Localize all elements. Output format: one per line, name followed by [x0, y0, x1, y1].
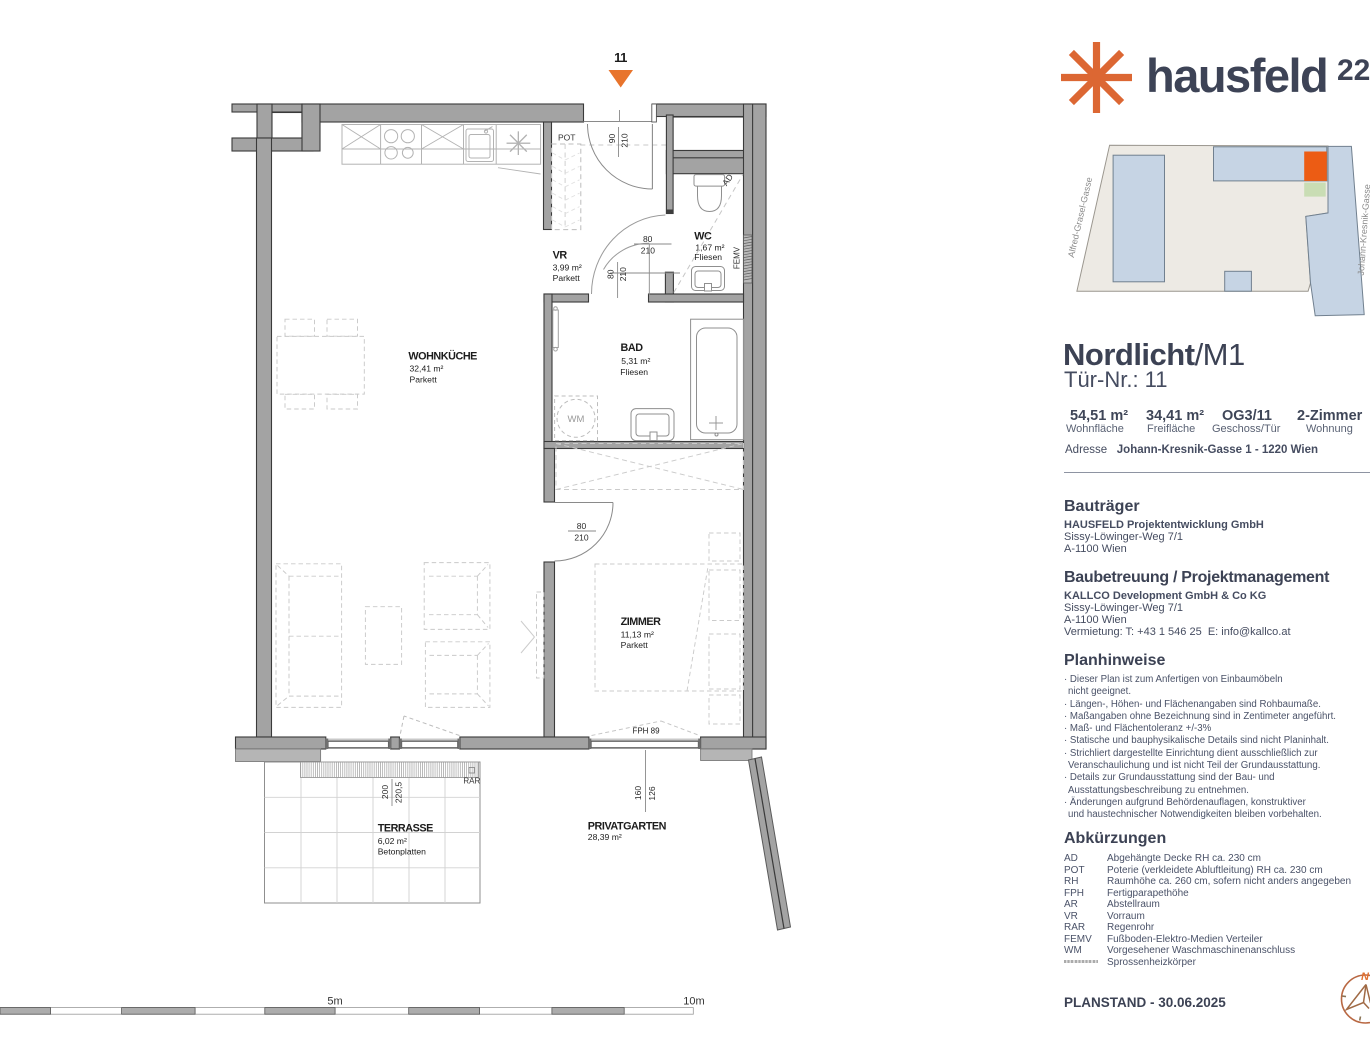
svg-text:220: 220 [1337, 54, 1370, 87]
svg-text:Parkett: Parkett [621, 640, 649, 650]
svg-text:210: 210 [641, 246, 655, 256]
svg-text:Fliesen: Fliesen [694, 252, 722, 262]
svg-text:1,67 m²: 1,67 m² [695, 242, 724, 252]
svg-text:126: 126 [647, 786, 657, 800]
svg-text:Betonplatten: Betonplatten [378, 847, 426, 857]
svg-text:N: N [1361, 971, 1370, 983]
svg-text:Parkett: Parkett [553, 273, 581, 283]
svg-text:ZIMMER: ZIMMER [621, 616, 662, 628]
svg-text:5,31 m²: 5,31 m² [621, 356, 650, 366]
svg-text:WM: WM [568, 414, 585, 425]
svg-text:11: 11 [614, 50, 627, 65]
svg-text:80: 80 [643, 234, 653, 244]
svg-text:10m: 10m [683, 996, 704, 1008]
svg-text:3,99 m²: 3,99 m² [553, 262, 582, 272]
svg-text:WOHNKÜCHE: WOHNKÜCHE [408, 350, 477, 363]
svg-text:80: 80 [577, 521, 587, 531]
svg-text:FEMV: FEMV [733, 246, 742, 269]
svg-text:6,02 m²: 6,02 m² [378, 836, 407, 846]
svg-text:PRIVATGARTEN: PRIVATGARTEN [588, 820, 667, 832]
svg-text:FPH 89: FPH 89 [632, 727, 660, 736]
svg-text:210: 210 [618, 267, 628, 281]
svg-text:210: 210 [619, 133, 629, 147]
svg-text:5m: 5m [327, 996, 342, 1008]
svg-text:28,39 m²: 28,39 m² [588, 832, 622, 842]
svg-text:RAR: RAR [463, 777, 480, 786]
svg-text:Parkett: Parkett [410, 375, 438, 385]
svg-text:Fliesen: Fliesen [620, 367, 648, 377]
svg-text:POT: POT [558, 133, 575, 143]
svg-text:80: 80 [606, 269, 616, 279]
svg-text:90: 90 [607, 134, 617, 144]
svg-text:200: 200 [380, 785, 390, 799]
svg-text:BAD: BAD [621, 342, 644, 354]
svg-text:160: 160 [633, 786, 643, 800]
svg-text:VR: VR [553, 249, 568, 261]
svg-text:32,41 m²: 32,41 m² [410, 363, 444, 373]
svg-text:WC: WC [694, 231, 712, 243]
svg-text:210: 210 [574, 533, 588, 543]
svg-text:11,13 m²: 11,13 m² [621, 629, 654, 639]
svg-text:220,5: 220,5 [393, 782, 403, 804]
svg-text:hausfeld: hausfeld [1146, 49, 1327, 102]
svg-text:TERRASSE: TERRASSE [378, 823, 433, 835]
